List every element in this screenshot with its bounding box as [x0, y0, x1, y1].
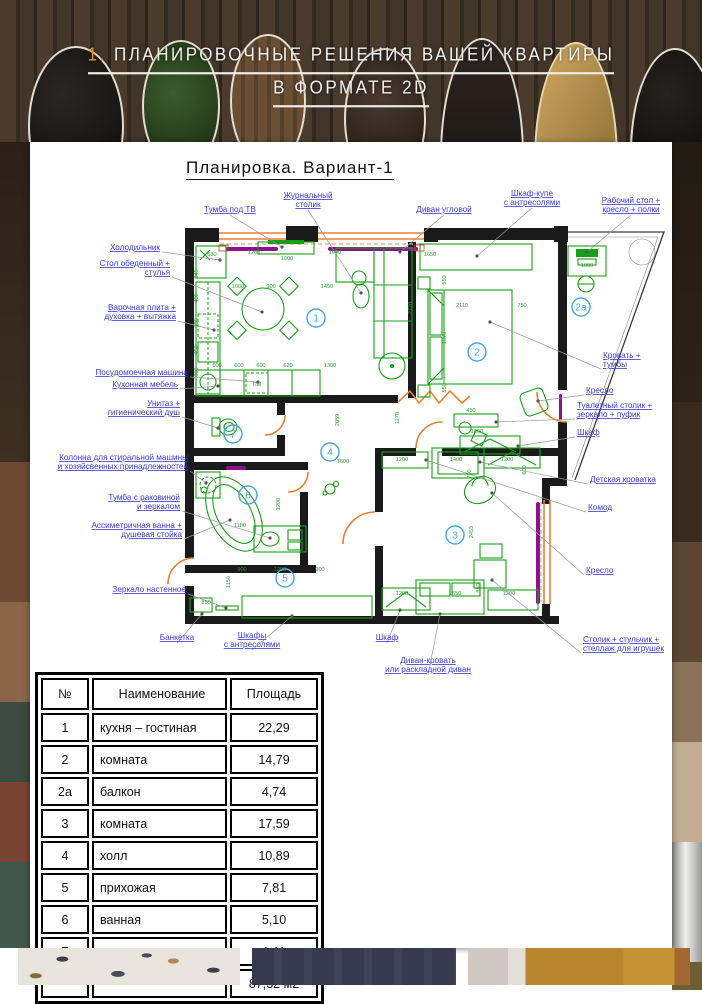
svg-text:Колонна для стиральной машиныи: Колонна для стиральной машиныи хозяйсвен… [58, 453, 188, 471]
header-title-line1: ПЛАНИРОВОЧНЫЕ РЕШЕНИЯ ВАШЕЙ КВАРТИРЫ [114, 44, 614, 65]
table-row: 5прихожая7,81 [41, 873, 318, 902]
dimension-text: 850 [201, 600, 210, 606]
dimension-text: 450 [466, 408, 475, 414]
cell-name: ванная [92, 905, 227, 934]
svg-text:Детская кроватка: Детская кроватка [590, 475, 656, 484]
dimension-text: 2720 [408, 302, 414, 314]
header-number: 1. [88, 44, 107, 65]
dimension-text: 1200 [276, 498, 282, 510]
dimension-text: 600 [194, 367, 200, 376]
svg-text:Кресло: Кресло [586, 566, 614, 575]
cell-number: 4 [41, 841, 89, 870]
room-number-badge: 4 [321, 443, 339, 461]
photo-interior-mustard-sofa [468, 948, 690, 985]
dimension-text: 2110 [456, 303, 468, 309]
dimension-text: 900 [237, 567, 246, 573]
cell-area: 7,81 [230, 873, 318, 902]
cell-area: 5,10 [230, 905, 318, 934]
svg-text:1: 1 [313, 313, 319, 325]
svg-text:Варочная плита +духовка + вытя: Варочная плита +духовка + вытяжка [104, 303, 176, 321]
dimension-text: 2059 [335, 414, 341, 426]
cell-name: холл [92, 841, 227, 870]
dimension-text: 845 [194, 269, 200, 278]
svg-text:3: 3 [452, 530, 458, 542]
dimension-text: 1200 [501, 457, 513, 463]
table-row: 1кухня – гостиная22,29 [41, 713, 318, 742]
dimension-text: 1040 [329, 250, 341, 256]
cell-name: комната [92, 809, 227, 838]
dimension-text: 600 [234, 363, 243, 369]
dimension-text: 620 [283, 363, 292, 369]
photo-navy-fabric [252, 948, 456, 985]
svg-text:Унитаз +гигиенический душ: Унитаз +гигиенический душ [108, 399, 180, 417]
dimension-text: 600 [212, 363, 221, 369]
cell-area: 4,74 [230, 777, 318, 806]
svg-text:Холодильник: Холодильник [110, 243, 160, 252]
svg-text:5: 5 [282, 573, 288, 585]
table-row: 2комната14,79 [41, 745, 318, 774]
room-number-badge: 2 [468, 343, 486, 361]
dimension-text: 600 [256, 363, 265, 369]
header-title: 1. ПЛАНИРОВОЧНЫЕ РЕШЕНИЯ ВАШЕЙ КВАРТИРЫ … [0, 40, 702, 106]
cell-area: 17,59 [230, 809, 318, 838]
cell-area: 14,79 [230, 745, 318, 774]
room-number-badge: 5 [276, 569, 294, 587]
dimension-text: 1000 [281, 256, 293, 262]
furniture-childrens-room [382, 448, 540, 614]
svg-text:Шкаф-купес антресолями: Шкаф-купес антресолями [504, 190, 560, 207]
plan-label: Унитаз +гигиенический душ [108, 399, 220, 430]
room-number-badge: 1 [307, 309, 325, 327]
page: { "palette": { "blue_label": "#3a3ae0", … [0, 0, 702, 990]
dimension-text: 550 [442, 383, 448, 392]
left-photo-edge [0, 142, 30, 948]
svg-text:Тумба с раковинойи зеркалом: Тумба с раковинойи зеркалом [108, 493, 180, 511]
dimension-text: 1170 [395, 412, 401, 424]
svg-text:Журнальныйстолик: Журнальныйстолик [283, 191, 332, 209]
table-row: 4холл10,89 [41, 841, 318, 870]
dimension-text: 1650 [424, 252, 436, 258]
dimension-text: 1300 [324, 363, 336, 369]
floor-plan: ХолодильникСтол обеденный +стульяВарочна… [30, 190, 672, 690]
plan-label: Детская кроватка [478, 460, 656, 484]
right-photo-edge [672, 142, 702, 990]
cell-number: 1 [41, 713, 89, 742]
table-header-row: № Наименование Площадь [41, 678, 318, 710]
header-photo-collage: 1. ПЛАНИРОВОЧНЫЕ РЕШЕНИЯ ВАШЕЙ КВАРТИРЫ … [0, 0, 702, 142]
svg-text:Столик + стульчик +стеллаж для: Столик + стульчик +стеллаж для игрушек [583, 635, 664, 653]
cell-number: 2а [41, 777, 89, 806]
svg-text:Шкаф: Шкаф [577, 428, 600, 437]
plan-label: Комод [424, 458, 612, 512]
table-row: 6ванная5,10 [41, 905, 318, 934]
svg-text:6: 6 [245, 490, 251, 502]
header-name: Наименование [92, 678, 227, 710]
dimension-text: 1650 [449, 591, 461, 597]
svg-text:Ассиметричная ванна +душевая с: Ассиметричная ванна +душевая стойка [91, 521, 182, 539]
plan-label: Шкаф-купес антресолями [475, 190, 560, 258]
dimension-text: 1200 [396, 591, 408, 597]
header-area: Площадь [230, 678, 318, 710]
room-number-badge: 3 [446, 526, 464, 544]
svg-text:Диван-кроватьили раскладной ди: Диван-кроватьили раскладной диван [385, 656, 471, 674]
dimension-text: 1000 [581, 263, 593, 269]
svg-text:Шкаф: Шкаф [376, 633, 399, 642]
room-number-badge: 2а [572, 298, 590, 316]
plan-title: Планировка. Вариант-1 [186, 158, 394, 180]
svg-text:Кресло: Кресло [586, 386, 614, 395]
svg-text:4: 4 [327, 447, 333, 459]
header-title-line2: В ФОРМАТЕ 2D [273, 72, 429, 108]
svg-text:Диван угловой: Диван угловой [416, 205, 471, 214]
dimension-text: 1000 [471, 429, 483, 435]
svg-text:Рабочий стол +кресло + полки: Рабочий стол +кресло + полки [602, 196, 661, 214]
dimension-text: 900 [266, 284, 275, 290]
dimension-text: 1200 [396, 457, 408, 463]
dimension-text: 630 [207, 252, 216, 258]
dimension-text: 450 [194, 293, 200, 302]
photo-fabric-leaf-pattern [18, 948, 240, 985]
cell-name: комната [92, 745, 227, 774]
dimension-text: ПМ [253, 382, 262, 388]
dimension-text: 600 [522, 465, 528, 474]
svg-text:2: 2 [474, 347, 480, 359]
plan-label: Рабочий стол +кресло + полки [585, 196, 660, 254]
dimension-text: 2455 [469, 526, 475, 538]
room-number-badge: 7 [224, 425, 242, 443]
doors [168, 391, 567, 584]
dimension-text: 900 [194, 318, 200, 327]
svg-text:2а: 2а [575, 302, 587, 314]
dimension-text: 1400 [450, 457, 462, 463]
dimension-text: 700 [467, 469, 473, 478]
cell-area: 10,89 [230, 841, 318, 870]
svg-text:Стол обеденный +стулья: Стол обеденный +стулья [100, 259, 171, 277]
cell-name: кухня – гостиная [92, 713, 227, 742]
dimension-text: 750 [517, 303, 526, 309]
dimension-text: 450 [194, 345, 200, 354]
cell-area: 22,29 [230, 713, 318, 742]
dimension-text: 550 [442, 275, 448, 284]
plan-label: Туалетный столик +зеркало + пуфик [494, 401, 652, 424]
dimension-text: 1450 [321, 284, 333, 290]
dimension-text: 850 [476, 583, 482, 592]
svg-text:Туалетный столик +зеркало + пу: Туалетный столик +зеркало + пуфик [577, 401, 652, 419]
dimension-text: 1180 [234, 523, 246, 529]
dimension-text: 1600 [337, 459, 349, 465]
svg-text:Банкетка: Банкетка [160, 633, 195, 642]
svg-text:Посудомоечная машина: Посудомоечная машина [95, 368, 188, 377]
dimension-text: 1200 [503, 591, 515, 597]
cell-number: 5 [41, 873, 89, 902]
dimension-text: 1150 [226, 576, 232, 588]
svg-text:Кухонная мебель: Кухонная мебель [112, 380, 178, 389]
header-num: № [41, 678, 89, 710]
dimension-text: 900 [315, 567, 324, 573]
table-row: 3комната17,59 [41, 809, 318, 838]
cell-number: 3 [41, 809, 89, 838]
dimension-text: 1000 [232, 284, 244, 290]
furniture-kitchen-living [196, 240, 412, 396]
cell-name: балкон [92, 777, 227, 806]
svg-text:Тумба под ТВ: Тумба под ТВ [204, 205, 256, 214]
table-row: 2абалкон4,74 [41, 777, 318, 806]
cell-number: 6 [41, 905, 89, 934]
svg-text:Кровать +тумбы: Кровать +тумбы [603, 351, 641, 369]
dimension-text: 1870 [442, 332, 448, 344]
svg-text:7: 7 [230, 429, 236, 441]
cell-name: прихожая [92, 873, 227, 902]
svg-text:Зеркало настенное: Зеркало настенное [112, 585, 186, 594]
cell-number: 2 [41, 745, 89, 774]
dimension-text: 1280 [248, 250, 260, 256]
svg-text:Комод: Комод [588, 503, 612, 512]
plan-label: Кухонная мебель [112, 380, 219, 389]
